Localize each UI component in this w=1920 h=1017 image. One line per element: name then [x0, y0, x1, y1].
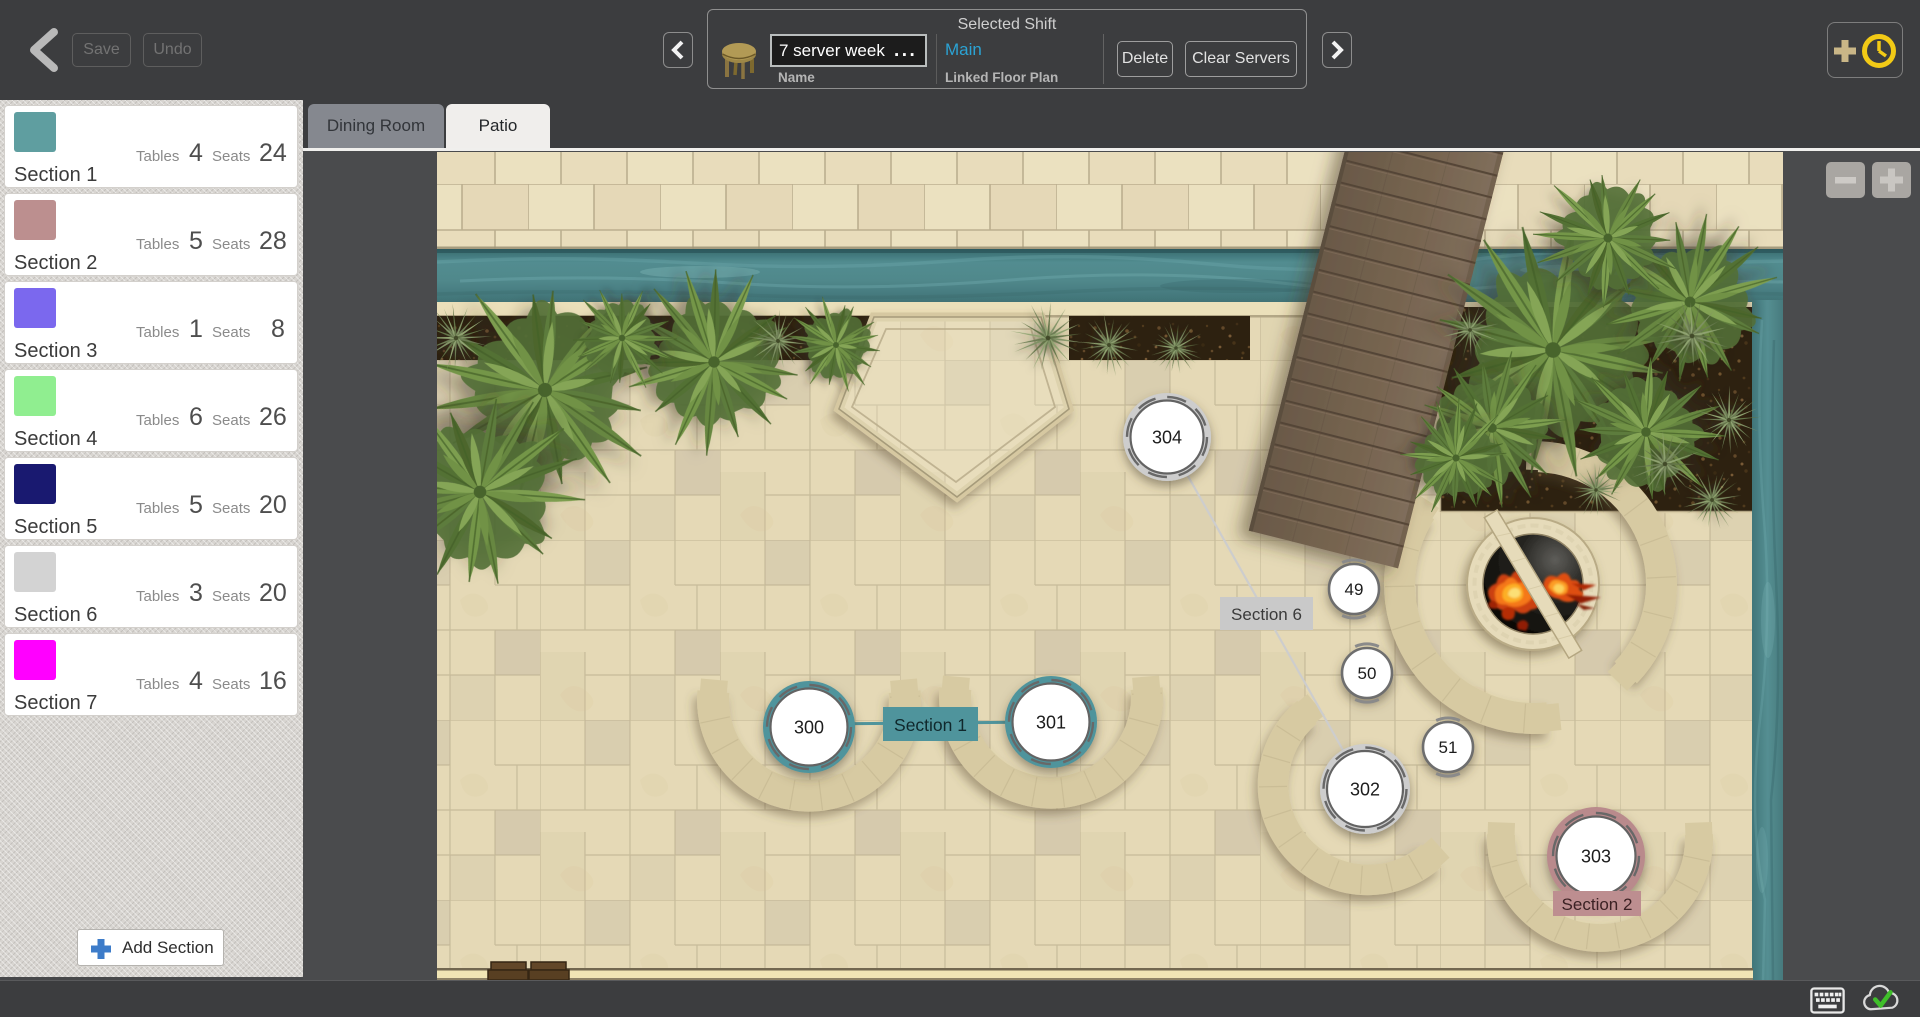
svg-text:51: 51 — [1439, 738, 1458, 757]
svg-text:302: 302 — [1350, 779, 1380, 799]
svg-text:301: 301 — [1036, 712, 1066, 732]
svg-text:300: 300 — [794, 717, 824, 737]
svg-text:303: 303 — [1581, 846, 1611, 866]
svg-text:Section 6: Section 6 — [1231, 605, 1302, 624]
svg-text:49: 49 — [1345, 580, 1364, 599]
svg-text:50: 50 — [1358, 664, 1377, 683]
svg-text:Section 2: Section 2 — [1562, 895, 1633, 914]
svg-text:304: 304 — [1152, 427, 1182, 447]
svg-text:Section 1: Section 1 — [894, 715, 967, 735]
